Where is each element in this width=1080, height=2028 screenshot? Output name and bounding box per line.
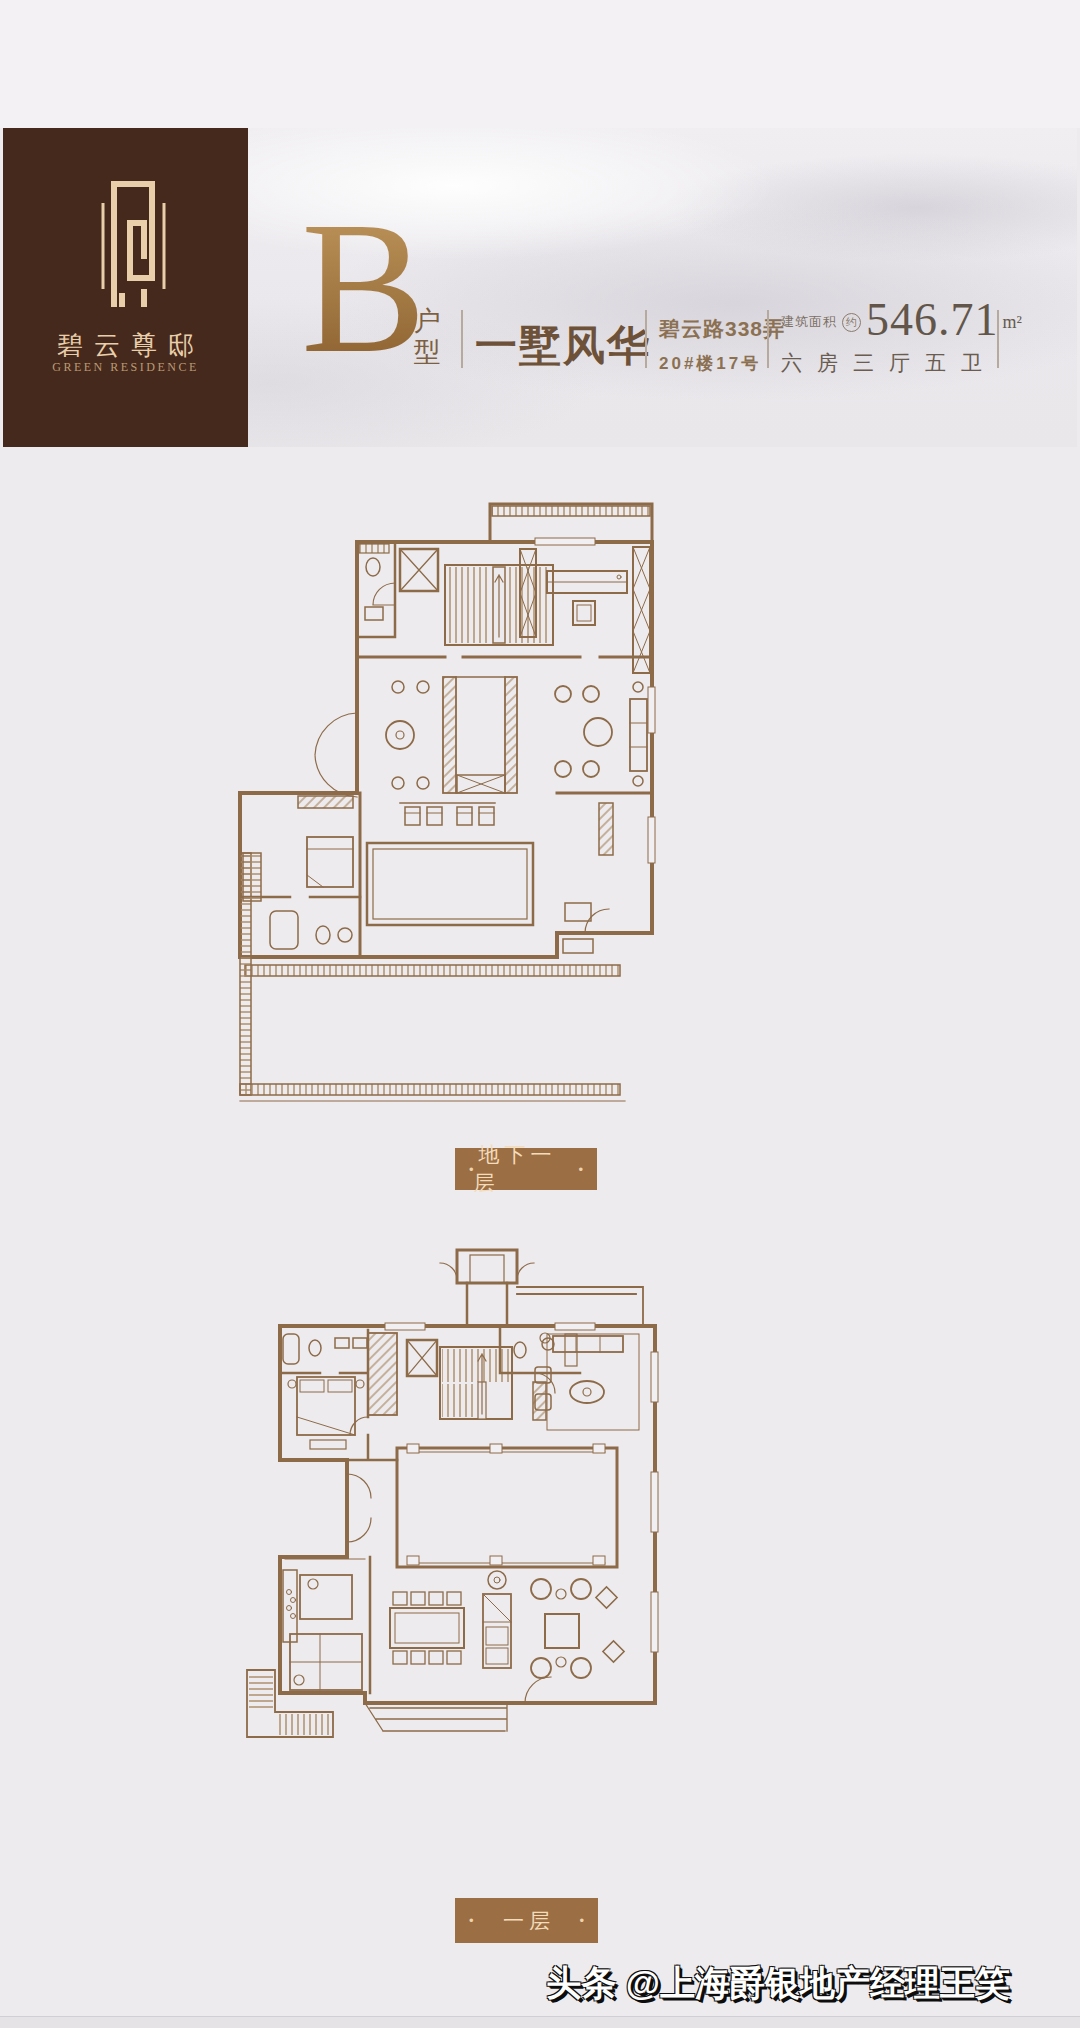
top-margin-strip	[0, 0, 1080, 128]
area-label: 建筑面积	[781, 313, 837, 331]
header-divider	[767, 310, 769, 368]
area-value: 546.71	[866, 300, 999, 340]
header-divider	[645, 310, 647, 368]
badge-dot: •	[579, 1913, 584, 1928]
toutiao-watermark: 头条 @上海爵银地产经理王笑	[546, 1960, 1010, 2007]
badge-dot: •	[469, 1913, 474, 1928]
area-block: 建筑面积约546.71m² 六房三厅五卫	[781, 300, 1022, 377]
slogan-text: 一墅风华	[475, 318, 651, 374]
first-floorplan	[235, 1242, 665, 1757]
badge-dot: •	[578, 1162, 583, 1177]
flyer-page: 碧云尊邸 GREEN RESIDENCE B 户型 一墅风华 碧云路338弄 2…	[0, 0, 1080, 2028]
floor-label-first: • 一层 •	[455, 1898, 598, 1943]
brand-monogram-icon	[100, 180, 167, 312]
area-unit: m²	[1003, 312, 1022, 333]
brand-name-en: GREEN RESIDENCE	[3, 360, 248, 375]
header-divider	[461, 310, 463, 368]
room-layout-text: 六房三厅五卫	[781, 349, 1022, 377]
basement-floorplan	[195, 487, 665, 1107]
area-approx-circle: 约	[842, 313, 861, 332]
floor-label-basement: • 地下一层 •	[455, 1148, 597, 1190]
header-band: 碧云尊邸 GREEN RESIDENCE B 户型 一墅风华 碧云路338弄 2…	[3, 128, 1077, 447]
bottom-edge-strip	[0, 2016, 1080, 2028]
brand-name-cn: 碧云尊邸	[3, 328, 248, 363]
unit-type-suffix: 户型	[410, 306, 444, 368]
header-divider	[997, 310, 999, 368]
unit-type-letter: B	[301, 194, 426, 382]
brand-logo-box: 碧云尊邸 GREEN RESIDENCE	[3, 128, 248, 447]
